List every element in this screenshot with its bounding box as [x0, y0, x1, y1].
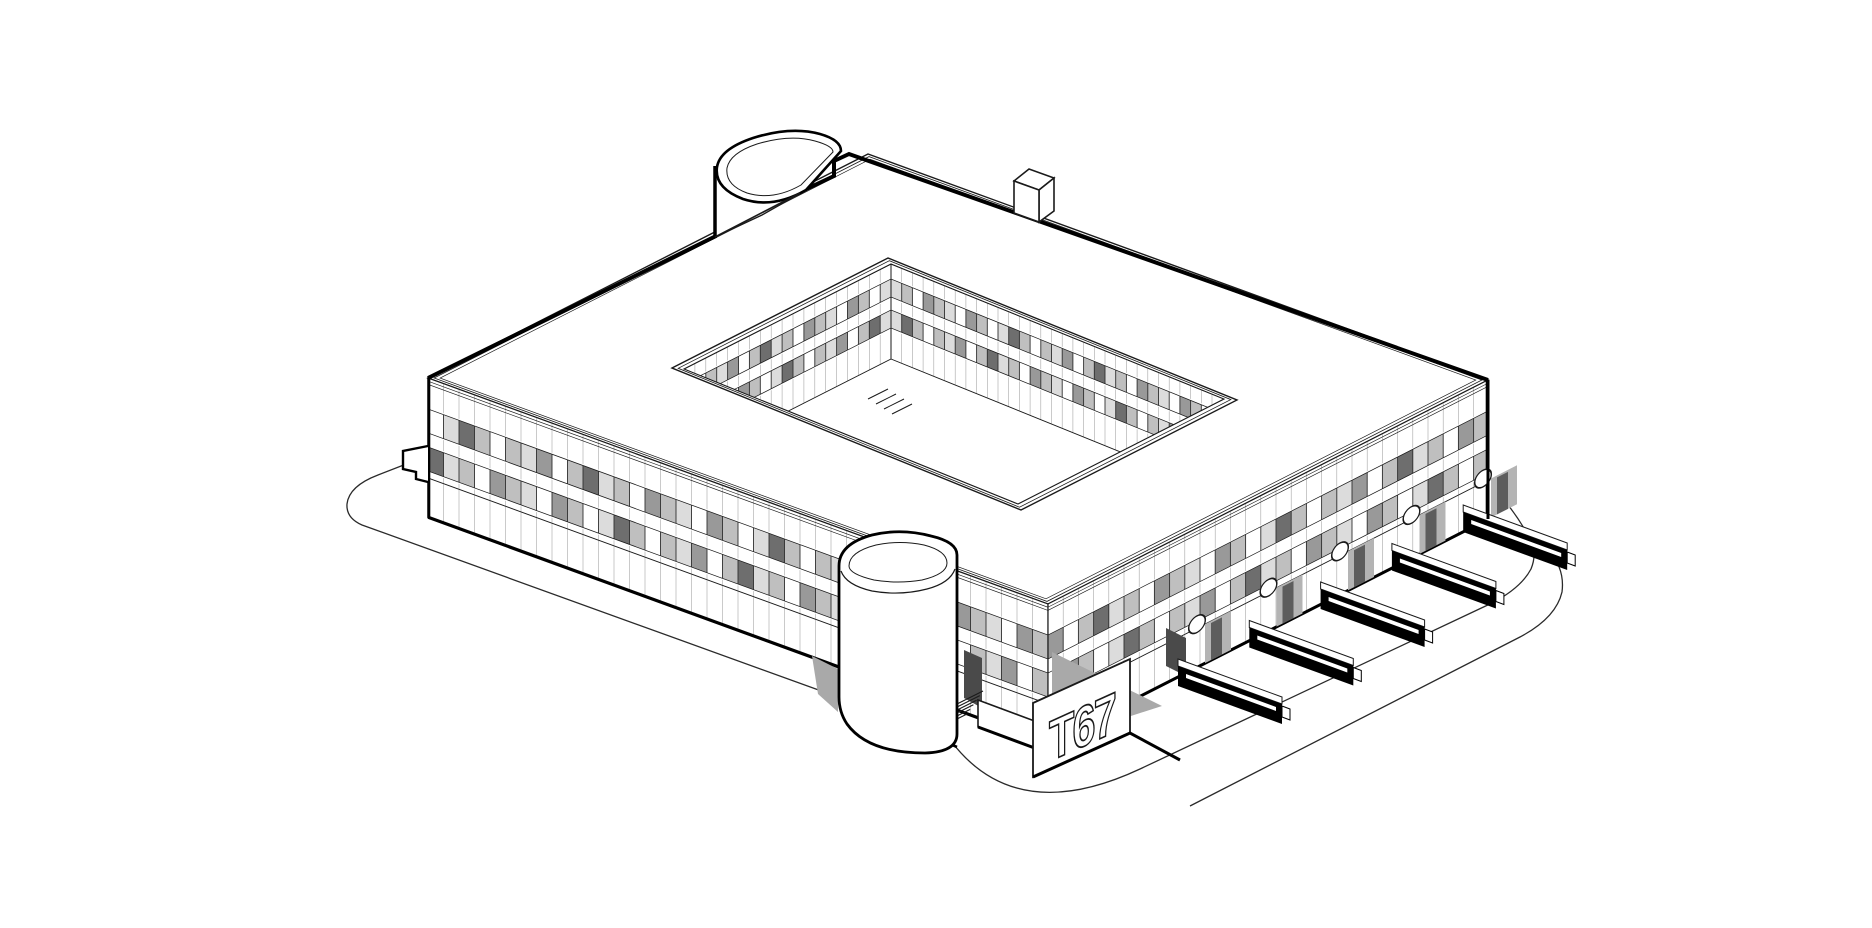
- dock-end-opening: [1567, 552, 1575, 566]
- dock-door-shadow: [1354, 545, 1365, 588]
- building-axonometric-drawing: T67: [0, 0, 1872, 928]
- dock-door-shadow: [1283, 581, 1294, 624]
- dock-door-shadow: [1426, 508, 1437, 551]
- front-stair-tower: [839, 532, 957, 753]
- dock-end-opening: [1425, 629, 1433, 643]
- drawing-canvas: T67: [0, 0, 1872, 928]
- dock-end-opening: [1353, 668, 1361, 682]
- dock-end-opening: [1496, 591, 1504, 605]
- roof-vent: [1014, 169, 1054, 222]
- dock-door-shadow: [1497, 472, 1508, 515]
- dock-door-shadow: [1211, 617, 1222, 660]
- dock-end-opening: [1282, 706, 1290, 720]
- front-tower-body: [839, 532, 957, 753]
